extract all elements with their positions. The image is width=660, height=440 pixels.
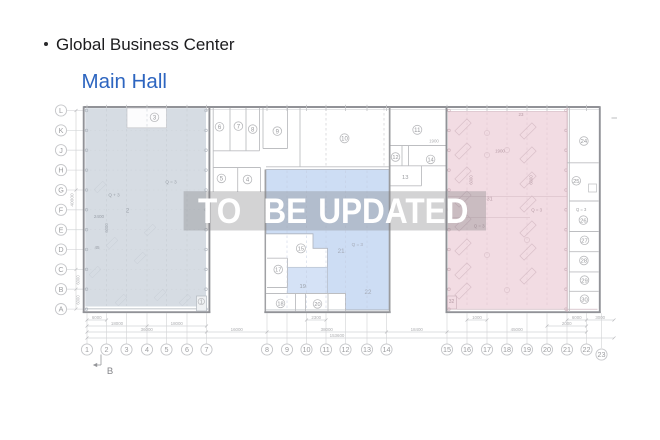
svg-text:5: 5	[220, 177, 224, 183]
svg-text:18400: 18400	[411, 327, 424, 332]
svg-text:23: 23	[519, 112, 524, 117]
svg-text:2400: 2400	[94, 214, 105, 219]
svg-text:19: 19	[523, 345, 531, 354]
svg-text:Q + 3: Q + 3	[108, 193, 120, 198]
svg-text:19: 19	[299, 284, 305, 290]
svg-text:45: 45	[94, 245, 100, 250]
svg-text:18000: 18000	[111, 321, 124, 326]
svg-text:G: G	[58, 186, 64, 195]
svg-text:31: 31	[487, 197, 493, 203]
svg-text:16000: 16000	[231, 327, 244, 332]
svg-text:B: B	[107, 366, 113, 377]
svg-text:1900: 1900	[429, 138, 439, 143]
svg-text:4: 4	[246, 178, 250, 184]
svg-text:E: E	[59, 225, 64, 234]
svg-text:9: 9	[276, 129, 280, 135]
svg-text:A: A	[59, 305, 64, 314]
svg-text:6000: 6000	[572, 315, 582, 320]
svg-text:32: 32	[449, 299, 455, 305]
svg-text:14: 14	[427, 158, 433, 164]
svg-text:45000: 45000	[511, 327, 524, 332]
svg-text:14: 14	[383, 345, 391, 354]
svg-text:153600: 153600	[330, 333, 345, 338]
svg-text:L: L	[59, 106, 63, 115]
svg-text:4: 4	[145, 345, 149, 354]
svg-text:29: 29	[581, 278, 587, 284]
svg-text:13: 13	[402, 175, 408, 181]
svg-text:24: 24	[581, 139, 588, 145]
svg-text:17: 17	[483, 345, 491, 354]
svg-text:6000: 6000	[529, 175, 534, 185]
svg-text:18: 18	[277, 302, 283, 308]
svg-text:27: 27	[581, 239, 587, 245]
svg-text:6000: 6000	[469, 175, 474, 185]
svg-text:1000: 1000	[472, 315, 482, 320]
svg-text:8: 8	[251, 127, 255, 133]
svg-text:1: 1	[85, 345, 89, 354]
svg-text:15: 15	[298, 247, 304, 253]
svg-text:11: 11	[414, 128, 421, 134]
svg-text:6000: 6000	[92, 315, 102, 320]
svg-text:3000: 3000	[595, 315, 605, 320]
svg-text:8: 8	[265, 345, 269, 354]
svg-text:16: 16	[463, 345, 471, 354]
svg-text:23: 23	[598, 350, 606, 359]
svg-text:6: 6	[185, 345, 189, 354]
svg-text:2: 2	[105, 345, 109, 354]
svg-text:2300: 2300	[311, 315, 321, 320]
svg-text:2000: 2000	[562, 321, 572, 326]
svg-text:Q = 3: Q = 3	[576, 207, 587, 212]
svg-text:K: K	[59, 126, 64, 135]
svg-text:13: 13	[363, 345, 371, 354]
svg-text:17: 17	[275, 268, 281, 274]
svg-text:26: 26	[580, 218, 586, 224]
svg-text:6: 6	[218, 125, 222, 131]
svg-text:28: 28	[581, 259, 587, 265]
svg-text:30: 30	[581, 297, 587, 303]
svg-text:22: 22	[583, 345, 591, 354]
svg-text:12: 12	[342, 345, 350, 354]
svg-text:18: 18	[503, 345, 511, 354]
svg-text:1: 1	[200, 299, 203, 305]
svg-text:11: 11	[322, 345, 329, 354]
svg-text:25: 25	[573, 179, 579, 185]
svg-text:38000: 38000	[321, 327, 334, 332]
svg-text:21: 21	[563, 345, 571, 354]
svg-text:40000: 40000	[70, 193, 76, 207]
svg-text:12: 12	[392, 155, 398, 161]
svg-text:10: 10	[341, 137, 348, 143]
svg-text:7: 7	[205, 345, 209, 354]
svg-text:36000: 36000	[141, 327, 154, 332]
svg-text:B: B	[59, 285, 64, 294]
svg-text:21: 21	[338, 248, 345, 255]
svg-text:20: 20	[314, 302, 320, 308]
svg-text:10: 10	[303, 345, 311, 354]
svg-text:5: 5	[165, 345, 169, 354]
svg-text:D: D	[58, 245, 63, 254]
svg-text:Q = 3: Q = 3	[531, 208, 542, 213]
svg-text:15: 15	[443, 345, 451, 354]
svg-text:F: F	[59, 205, 64, 214]
svg-text:Q = 3: Q = 3	[352, 242, 364, 247]
svg-text:6000: 6000	[76, 275, 81, 285]
svg-text:Q = 3: Q = 3	[165, 180, 177, 185]
svg-text:3: 3	[125, 345, 129, 354]
svg-text:7: 7	[237, 124, 241, 130]
svg-text:20: 20	[543, 345, 551, 354]
svg-text:H: H	[58, 166, 63, 175]
svg-text:1900: 1900	[495, 149, 505, 154]
svg-text:9: 9	[285, 345, 289, 354]
svg-text:18000: 18000	[171, 321, 184, 326]
svg-text:6000: 6000	[76, 295, 81, 305]
svg-text:22: 22	[365, 289, 372, 296]
svg-text:J: J	[59, 146, 63, 155]
svg-text:C: C	[58, 265, 63, 274]
svg-text:6000: 6000	[104, 223, 109, 233]
